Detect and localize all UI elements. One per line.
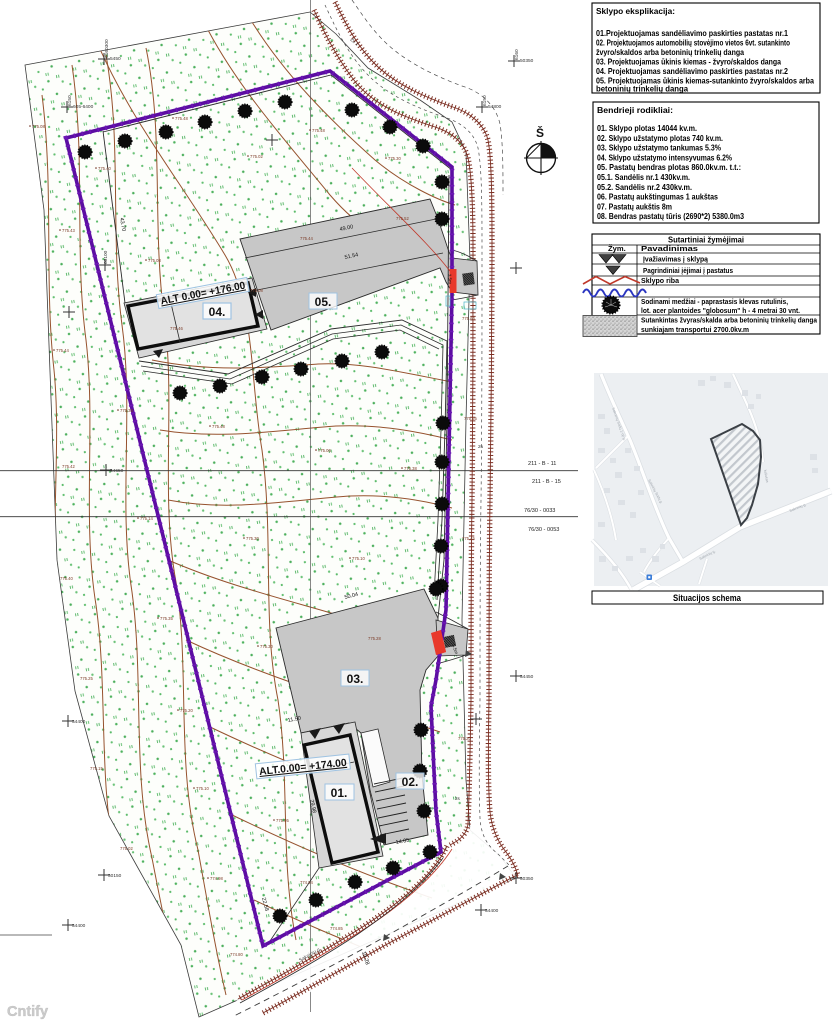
svg-text:Pagrindiniai įėjimai į pastatu: Pagrindiniai įėjimai į pastatus (643, 266, 733, 275)
svg-text:žvyro/skaldos arba betoninių t: žvyro/skaldos arba betoninių trinkelių d… (596, 48, 744, 57)
svg-text:775.02: 775.02 (250, 154, 263, 159)
svg-text:05.1. Sandėlis nr.1 430kv.m.: 05.1. Sandėlis nr.1 430kv.m. (597, 173, 690, 182)
svg-text:775.14: 775.14 (140, 516, 153, 521)
svg-text:50150: 50150 (108, 873, 122, 879)
svg-text:50350: 50350 (520, 58, 534, 64)
svg-text:775.48: 775.48 (212, 424, 225, 429)
svg-text:03. Projektuojamas ūkinis kiem: 03. Projektuojamas ūkinis kiemas - žvyro… (596, 58, 781, 67)
svg-text:775.10: 775.10 (196, 786, 209, 791)
svg-text:Įvažiavimas į sklypą: Įvažiavimas į sklypą (643, 255, 709, 264)
svg-text:775.42: 775.42 (62, 464, 75, 469)
svg-text:775.38: 775.38 (404, 466, 417, 471)
svg-text:Š: Š (536, 125, 544, 140)
svg-text:60100: 60100 (103, 250, 109, 264)
svg-text:05.: 05. (315, 295, 332, 309)
svg-text:05.2. Sandėlis nr.2 430kv.m.: 05.2. Sandėlis nr.2 430kv.m. (597, 183, 692, 192)
svg-text:774.98: 774.98 (210, 876, 223, 881)
svg-text:Cntify: Cntify (7, 1004, 48, 1020)
svg-text:775.20: 775.20 (180, 708, 193, 713)
svg-text:775.06: 775.06 (318, 448, 331, 453)
svg-text:775.20: 775.20 (458, 736, 471, 741)
svg-text:04. Projektuojamas sandėliavim: 04. Projektuojamas sandėliavimo paskirti… (596, 67, 788, 76)
svg-text:02. Sklypo užstatymo plotas 74: 02. Sklypo užstatymo plotas 740 kv.m. (597, 134, 723, 143)
svg-text:775.44: 775.44 (56, 348, 69, 353)
svg-text:54450: 54450 (520, 674, 534, 680)
svg-text:775.48: 775.48 (312, 128, 325, 133)
svg-text:775.30: 775.30 (260, 644, 273, 649)
svg-text:605-6400: 605-6400 (73, 104, 94, 110)
svg-text:775.10: 775.10 (352, 556, 365, 561)
svg-text:211 - B - 15: 211 - B - 15 (532, 479, 561, 485)
svg-text:Sodinami medžiai - paprastasis: Sodinami medžiai - paprastasis klevas ru… (641, 297, 788, 306)
svg-text:Bendrieji rodikliai:: Bendrieji rodikliai: (597, 106, 673, 115)
svg-text:6160300: 6160300 (104, 39, 110, 58)
svg-text:54400: 54400 (72, 923, 86, 929)
svg-text:775.44: 775.44 (300, 236, 313, 241)
svg-text:76/30 - 0053: 76/30 - 0053 (528, 527, 559, 533)
svg-text:Sklypo riba: Sklypo riba (641, 276, 680, 285)
svg-text:76/30 - 0033: 76/30 - 0033 (524, 508, 555, 514)
svg-text:775.43: 775.43 (62, 228, 75, 233)
svg-text:01.Projektuojamas sandėliavimo: 01.Projektuojamas sandėliavimo paskirtie… (596, 29, 788, 38)
svg-text:3.5m: 3.5m (447, 274, 453, 285)
svg-text:08. Bendras pastatų tūris (269: 08. Bendras pastatų tūris (2690*2) 5380.… (597, 212, 744, 221)
svg-text:775.28: 775.28 (368, 636, 381, 641)
svg-text:betoninių trinkelių danga: betoninių trinkelių danga (596, 85, 688, 94)
svg-text:775.25: 775.25 (80, 676, 93, 681)
svg-text:775.05: 775.05 (276, 818, 289, 823)
svg-text:sunkiajam transportui 2700.0kv: sunkiajam transportui 2700.0kv.m (641, 325, 749, 334)
svg-text:01. Sklypo plotas 14044 kv.m.: 01. Sklypo plotas 14044 kv.m. (597, 124, 697, 133)
svg-text:2u: 2u (478, 444, 484, 449)
svg-text:2s: 2s (455, 796, 461, 801)
svg-text:Pavadinimas: Pavadinimas (641, 244, 698, 253)
svg-text:54400: 54400 (485, 908, 499, 914)
svg-text:03. Sklypo užstatymo tankumas: 03. Sklypo užstatymo tankumas 5.3% (597, 144, 722, 153)
svg-text:775.15: 775.15 (90, 766, 103, 771)
svg-text:775.02: 775.02 (120, 846, 133, 851)
svg-text:211 - B - 11: 211 - B - 11 (528, 461, 556, 467)
svg-text:Žym.: Žym. (608, 244, 626, 253)
svg-text:06. Pastatų aukštingumas 1 auk: 06. Pastatų aukštingumas 1 aukštas (597, 193, 718, 202)
svg-text:54800: 54800 (488, 104, 502, 110)
svg-text:775.40: 775.40 (60, 576, 73, 581)
svg-text:775.52: 775.52 (396, 216, 409, 221)
svg-text:775.60: 775.60 (462, 316, 475, 321)
svg-text:07. Pastatų aukštis 8m: 07. Pastatų aukštis 8m (597, 202, 672, 211)
svg-text:5450: 5450 (110, 56, 121, 62)
svg-text:774.94: 774.94 (300, 880, 313, 885)
svg-text:04.: 04. (209, 305, 226, 319)
svg-text:Sklypo eksplikacija:: Sklypo eksplikacija: (596, 7, 675, 16)
svg-text:02. Projektuojamos automobilių: 02. Projektuojamos automobilių stovėjimo… (596, 39, 790, 48)
svg-text:Sutartiniai žymėjimai: Sutartiniai žymėjimai (668, 235, 744, 245)
svg-text:774.80: 774.80 (230, 952, 243, 957)
svg-text:775.55: 775.55 (464, 416, 477, 421)
svg-text:775.46: 775.46 (170, 326, 183, 331)
svg-text:775.48: 775.48 (175, 116, 188, 121)
svg-text:Situacijos schema: Situacijos schema (673, 593, 742, 604)
svg-text:775.35: 775.35 (160, 616, 173, 621)
svg-text:775.08: 775.08 (250, 288, 263, 293)
svg-text:775.38: 775.38 (120, 408, 133, 413)
svg-text:02.: 02. (402, 775, 419, 789)
svg-text:775.45: 775.45 (462, 536, 475, 541)
svg-text:04. Sklypo užstatymo intensyvu: 04. Sklypo užstatymo intensyvumas 6.2% (597, 153, 733, 162)
svg-text:775.30: 775.30 (388, 156, 401, 161)
svg-text:50350: 50350 (520, 876, 534, 882)
svg-text:54650: 54650 (110, 468, 124, 474)
svg-text:774.85: 774.85 (330, 926, 343, 931)
svg-text:775.40: 775.40 (98, 166, 111, 171)
svg-text:775.08: 775.08 (148, 258, 161, 263)
svg-text:lot. acer plantoides "globosu: lot. acer plantoides "globosum" h - 4 me… (641, 306, 800, 315)
svg-text:Sutankintas žvyras/skalda arba: Sutankintas žvyras/skalda arba betoninių… (641, 316, 818, 325)
svg-text:01.: 01. (331, 786, 348, 800)
svg-text:03.: 03. (347, 672, 364, 686)
svg-text:775.08: 775.08 (32, 124, 45, 129)
svg-text:54400: 54400 (72, 719, 86, 725)
svg-text:05. Pastatų bendras plotas 86: 05. Pastatų bendras plotas 860.0kv.m. t.… (597, 163, 741, 172)
svg-text:775.30: 775.30 (246, 536, 259, 541)
